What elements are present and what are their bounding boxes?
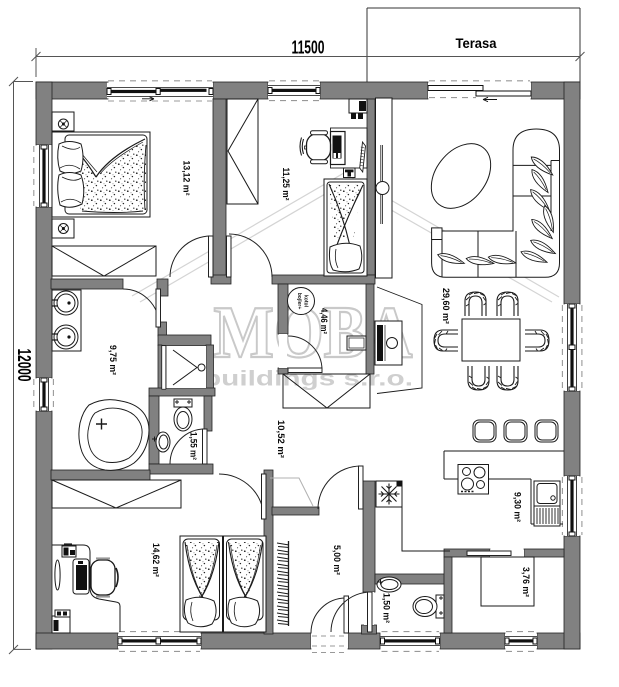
svg-text:bojler+: bojler+: [296, 293, 302, 310]
svg-text:9,75 m²: 9,75 m²: [108, 345, 118, 375]
svg-text:kotol: kotol: [303, 295, 309, 308]
svg-text:3,76 m²: 3,76 m²: [521, 567, 531, 597]
svg-text:1,50 m²: 1,50 m²: [382, 593, 392, 623]
svg-text:Terasa: Terasa: [456, 36, 497, 51]
svg-text:29,60 m²: 29,60 m²: [441, 288, 451, 324]
svg-text:10,52 m²: 10,52 m²: [276, 420, 286, 458]
svg-text:12000: 12000: [14, 349, 34, 382]
svg-text:4,46 m²: 4,46 m²: [319, 308, 329, 334]
svg-text:5,00 m²: 5,00 m²: [332, 545, 342, 575]
svg-text:14,62 m²: 14,62 m²: [151, 543, 161, 577]
svg-text:1,55 m²: 1,55 m²: [189, 432, 199, 460]
svg-text:13,12 m²: 13,12 m²: [182, 161, 192, 196]
svg-text:9,30 m²: 9,30 m²: [513, 492, 523, 522]
svg-text:11500: 11500: [292, 38, 325, 58]
svg-text:11,25 m²: 11,25 m²: [281, 168, 291, 201]
